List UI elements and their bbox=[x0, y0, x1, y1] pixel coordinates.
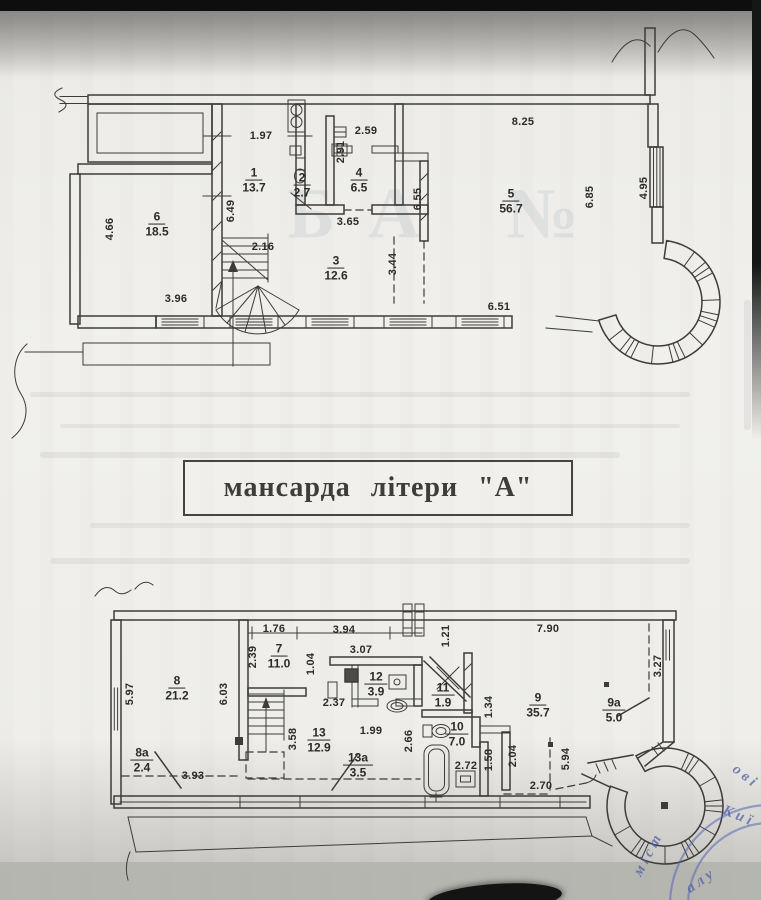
dimension-label: 6.55 bbox=[412, 188, 424, 211]
dimension-label: 5.97 bbox=[124, 683, 136, 706]
room-label: 46.5 bbox=[351, 167, 368, 196]
room-label: 935.7 bbox=[526, 692, 549, 721]
plan-linework bbox=[0, 0, 761, 900]
dimension-label: 2.70 bbox=[530, 780, 553, 792]
dimension-label: 8.25 bbox=[512, 116, 535, 128]
room-label: 711.0 bbox=[268, 643, 291, 672]
upper-plan-walls bbox=[12, 28, 720, 438]
dimension-label: 2.37 bbox=[323, 697, 346, 709]
dimension-label: 2.91 bbox=[335, 141, 347, 164]
dimension-label: 4.66 bbox=[104, 218, 116, 241]
dimension-label: 7.90 bbox=[537, 623, 560, 635]
dimension-label: 2.59 bbox=[355, 125, 378, 137]
floor-plan-scan: БА № bbox=[0, 0, 761, 900]
room-label: 22.7 bbox=[294, 172, 311, 201]
dimension-label: 3.93 bbox=[182, 770, 205, 782]
dimension-label: 2.66 bbox=[403, 730, 415, 753]
dimension-label: 1.58 bbox=[483, 749, 495, 772]
dimension-label: 1.99 bbox=[360, 725, 383, 737]
dimension-label: 6.49 bbox=[225, 200, 237, 223]
dimension-label: 3.58 bbox=[287, 728, 299, 751]
dimension-label: 6.51 bbox=[488, 301, 511, 313]
dimension-label: 5.94 bbox=[560, 748, 572, 771]
room-label: 13а3.5 bbox=[343, 752, 373, 781]
dimension-label: 1.21 bbox=[440, 625, 452, 648]
dimension-label: 1.34 bbox=[483, 696, 495, 719]
dimension-label: 1.04 bbox=[305, 653, 317, 676]
room-label: 821.2 bbox=[165, 675, 188, 704]
dimension-label: 2.04 bbox=[507, 745, 519, 768]
plan-title: мансарда літери "А" bbox=[224, 472, 533, 504]
room-label: 107.0 bbox=[445, 721, 468, 750]
dimension-label: 4.95 bbox=[638, 177, 650, 200]
dimension-label: 1.76 bbox=[263, 623, 286, 635]
dimension-label: 3.94 bbox=[333, 624, 356, 636]
room-label: 1312.9 bbox=[307, 727, 330, 756]
dimension-label: 3.27 bbox=[652, 655, 664, 678]
room-label: 8а2.4 bbox=[130, 747, 153, 776]
room-label: 618.5 bbox=[145, 211, 168, 240]
room-label: 123.9 bbox=[364, 671, 387, 700]
dimension-label: 3.07 bbox=[350, 644, 373, 656]
dimension-label: 2.72 bbox=[455, 760, 478, 772]
dimension-label: 6.03 bbox=[218, 683, 230, 706]
room-label: 111.9 bbox=[432, 682, 455, 711]
room-label: 312.6 bbox=[324, 255, 347, 284]
room-label: 113.7 bbox=[242, 167, 265, 196]
dimension-label: 3.44 bbox=[387, 253, 399, 276]
room-label: 9а5.0 bbox=[602, 697, 625, 726]
dimension-label: 2.39 bbox=[247, 646, 259, 669]
dimension-label: 6.85 bbox=[584, 186, 596, 209]
dimension-label: 3.96 bbox=[165, 293, 188, 305]
dimension-label: 3.65 bbox=[337, 216, 360, 228]
title-block: мансарда літери "А" bbox=[183, 460, 573, 516]
dimension-label: 1.97 bbox=[250, 130, 273, 142]
dimension-label: 2.16 bbox=[252, 241, 275, 253]
room-label: 556.7 bbox=[499, 188, 522, 217]
